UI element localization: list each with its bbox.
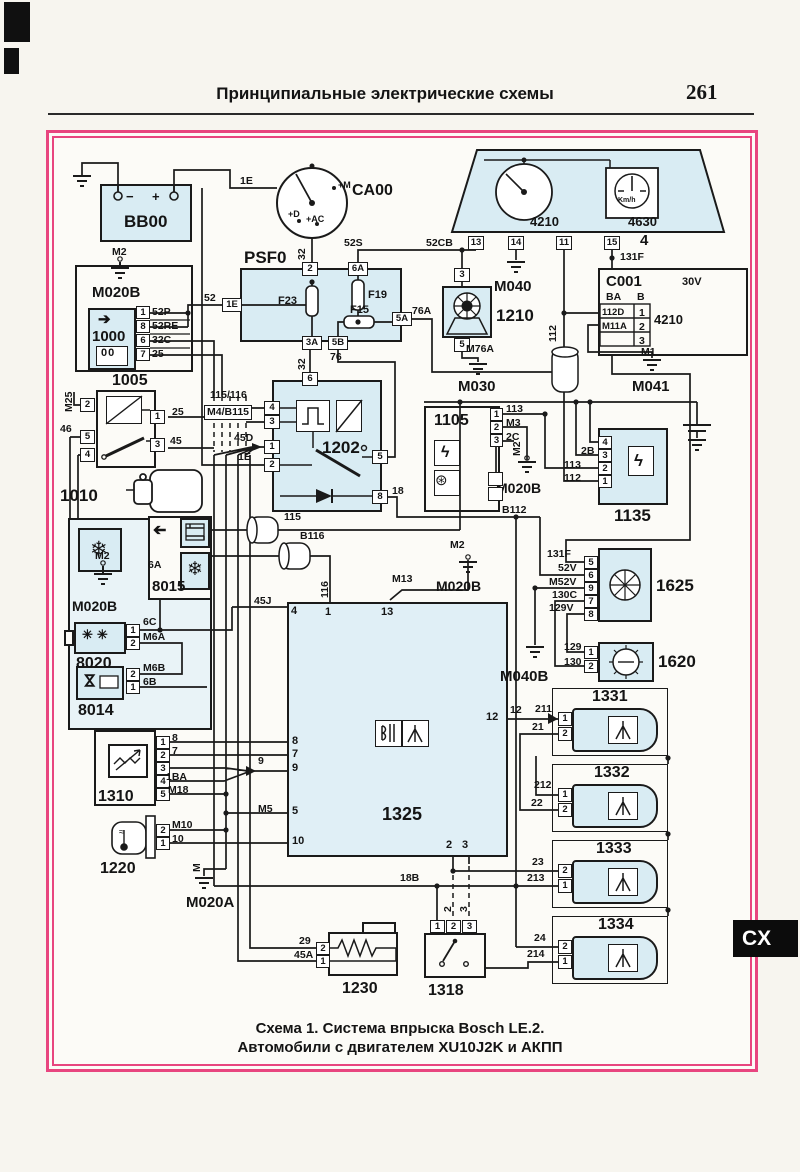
u1105-conn-a [488,472,503,486]
wire-m18: M18 [168,785,188,796]
wire-116: 116 [320,581,331,598]
ground-m030: M030 [458,378,496,395]
wire-m25: M25 [64,392,75,412]
u8014-pin-2: 2 [126,668,140,681]
wire-45j: 45J [254,596,272,607]
wire-52cb: 52CB [426,238,453,249]
c001-r2a: M11A [602,322,627,332]
wire-115-116: 115/116 [210,390,247,401]
wire-9: 9 [258,756,264,767]
wire-1ba: 1BA [166,772,187,783]
pump-1210-label: 1210 [496,306,534,326]
u1625-pin-5: 5 [584,556,598,569]
fuse-f23-label: F23 [278,296,297,307]
resistor-1230-step [362,922,396,934]
ecu-pin-1: 1 [325,607,331,618]
switch-1318-label: 1318 [428,982,464,1000]
u1625-pin-7: 7 [584,595,598,608]
c001-r1b: 1 [639,308,645,319]
injector-1331-icon-box [608,716,638,744]
psf0-label: PSF0 [244,248,287,268]
c001-label: C001 [606,273,642,290]
ac-8020-stub [64,630,74,646]
u1625-pin-9: 9 [584,582,598,595]
relay-1202-diag-icon-box [336,400,362,432]
arrow-left-icon: ➔ [153,523,166,539]
psf0-pin-5b: 5B [328,336,348,350]
wire-m4-b115: M4/B115 [204,405,252,420]
u1000-pin-6: 6 [136,334,150,347]
c001-colA: BA [606,292,621,303]
wire-45: 45 [170,436,182,447]
sensor-1220-label: 1220 [100,860,136,878]
ground-m040b: M040B [500,668,548,685]
ecu-pin-9: 9 [292,763,298,774]
battery-plus: + [152,190,160,203]
injector-1333-icon-box [608,868,638,896]
speedo-unit: Km/h [618,197,636,204]
module-1135-label: 1135 [614,506,651,526]
ac-8020-label: 8020 [76,655,112,673]
u8014-pin-1: 1 [126,681,140,694]
wire-m13: M13 [392,574,412,585]
ground-m040: M040 [494,278,532,295]
u1625-pin-6: 6 [584,569,598,582]
snowflake-icon-8015: ❄ [187,560,203,579]
wire-129: 129 [564,642,582,653]
u1202-pin-3: 3 [264,415,280,429]
u1105-pin-2: 2 [490,421,503,434]
u1202-pin-1: 1 [264,440,280,454]
arrow-right-icon: ➔ [98,312,111,327]
lightning-icon-1135: ϟ [634,452,643,469]
wire-52: 52 [204,293,216,304]
ecu-pin-5: 5 [292,806,298,817]
wire-113-a: 113 [506,404,523,415]
ecu-coil-icon-box [375,720,402,747]
wire-46: 46 [60,424,72,435]
wire-23: 23 [532,857,544,868]
u1135-pin-3: 3 [598,449,612,462]
psf0-pin-6a: 6A [348,262,368,276]
u1005-pin-4: 4 [80,448,95,462]
sensor-1625-box [598,548,652,622]
ecu-injector-icon-box [402,720,429,747]
u1202-pin-6: 6 [302,372,318,386]
i1332-pin-1: 1 [558,788,572,802]
ac-8015-relay-icon-box [180,518,210,548]
thermo-waves-icon: ≈ [119,828,125,838]
wire-112: 112 [548,325,559,342]
footprints-icon: 00 [101,348,115,359]
wire-10: 10 [172,834,184,845]
caption-line-2: Автомобили с двигателем XU10J2K и АКПП [140,1039,660,1058]
wire-m1: M1 [641,347,656,358]
u1220-pin-2: 2 [156,824,170,837]
injector-1334-icon-box [608,944,638,972]
u1135-pin-1: 1 [598,475,612,488]
pump-1210-box [442,286,492,338]
u1310-pin-2: 2 [156,749,170,762]
i1331-pin-1: 1 [558,712,572,726]
ecu-pin-3: 3 [462,840,468,851]
u1000-pin-1: 1 [136,306,150,319]
ground-m041: M041 [632,378,670,395]
ground-m020b-1: M020B [92,284,140,301]
ca00-term-d: +D [288,210,300,219]
wire-45a: 45A [294,950,313,961]
resistor-1230-box [328,932,398,976]
u1105-pin-1: 1 [490,408,503,421]
wire-b112: B112 [502,505,527,516]
wire-24: 24 [534,933,546,944]
u1318-pin-2: 2 [446,920,461,933]
wire-m6b: M6B [143,663,165,674]
u1000-pin-7: 7 [136,348,150,361]
c001-r3b: 3 [639,336,645,347]
i1333-pin-2: 2 [558,864,572,878]
relay-1005-label: 1005 [112,372,148,390]
wire-b116: B116 [300,531,325,542]
wire-52re: 52RE [152,321,178,332]
fuse-f15-label: F15 [350,305,369,316]
inj-1331-label: 1331 [592,688,628,706]
ecu-pin-8: 8 [292,736,298,747]
wire-52p: 52P [152,307,171,318]
wire-12: 12 [510,705,522,716]
u1105-conn-b [488,487,503,501]
pot-1310-icon-box [108,744,148,778]
wire-m52v: M52V [549,577,576,588]
cluster-number: 4 [640,232,648,249]
cluster-pin-13: 13 [468,236,484,250]
u1005-pin-2: 2 [80,398,95,412]
pot-1310-label: 1310 [98,788,134,806]
wire-2b: 2B [581,446,594,457]
ac-8015-label: 8015 [152,578,185,595]
c001-r2b: 2 [639,322,645,333]
psf0-pin-1e: 1E [222,298,242,312]
wire-212: 212 [534,780,552,791]
u8020-pin-2: 2 [126,637,140,650]
inj-1332-label: 1332 [594,764,630,782]
wire-32c: 32C [152,335,171,346]
page-title: Принципиальные электрические схемы [150,84,620,104]
ca00-term-ac: +AC [306,215,324,224]
wire-6c: 6C [143,617,156,628]
wire-52v: 52V [558,563,577,574]
wire-m2-top: M2 [112,247,127,258]
page-corner-mark [4,2,30,42]
wire-8: 8 [172,733,178,744]
u1230-pin-1: 1 [316,955,330,968]
fan-circle-icon-1105: ⊛ [435,473,448,488]
wire-32-a: 32 [297,248,308,260]
cluster-pin-11: 11 [556,236,572,250]
i1331-pin-2: 2 [558,727,572,741]
wire-m10: M10 [172,820,192,831]
ac-8014-label: 8014 [78,702,114,720]
ground-m020b-4: M020B [72,598,117,614]
wire-6a: 6A [148,560,161,571]
valve-icon-8014: ⋈ [82,673,97,688]
u1620-pin-2: 2 [584,660,598,673]
u1005-pin-3: 3 [150,438,165,452]
wire-129v: 129V [549,603,574,614]
battery-label: BB00 [124,212,167,232]
wire-29: 29 [299,936,311,947]
c001-volt: 30V [682,276,702,288]
inj-1334-label: 1334 [598,916,634,934]
wire-214: 214 [527,949,545,960]
wire-25-b: 25 [172,407,184,418]
fusebox-psf0-box [240,268,402,342]
wire-32-b: 32 [297,358,308,370]
u1135-pin-2: 2 [598,462,612,475]
i1333-pin-1: 1 [558,879,572,893]
wire-22: 22 [531,798,543,809]
u8020-pin-1: 1 [126,624,140,637]
u1000-pin-8: 8 [136,320,150,333]
u1202-pin-4: 4 [264,401,280,415]
u1625-pin-8: 8 [584,608,598,621]
c001-colB: B [637,292,645,303]
wire-18: 18 [392,486,404,497]
cluster-tacho-label: 4210 [530,214,559,229]
wire-6b: 6B [143,677,156,688]
psf0-pin-3a: 3A [302,336,322,350]
u1202-pin-8: 8 [372,490,388,504]
diagram-caption: Схема 1. Система впрыска Bosch LE.2. Авт… [140,1020,660,1058]
wire-130c: 130C [552,590,577,601]
sensor-1105-label: 1105 [434,412,469,430]
manual-page: Принципиальные электрические схемы 261 [0,0,800,1172]
snowflake-icon: ❄ [90,539,108,560]
u1202-pin-2: 2 [264,458,280,472]
cluster-pin-15: 15 [604,236,620,250]
comp-1010-label: 1010 [60,486,98,506]
psf0-pin-5a: 5A [392,312,412,326]
wire-m76a: M76A [466,344,494,355]
wire-25-row: 25 [152,349,164,360]
i1334-pin-2: 2 [558,940,572,954]
ecu-pin-12: 12 [486,712,498,723]
switch-1318-box [424,933,486,978]
wire-m: M [192,863,203,872]
relay-1005-coil-icon [106,396,142,424]
sensor-1620-box [598,642,654,682]
c001-r1a: 112D [602,308,624,318]
i1334-pin-1: 1 [558,955,572,969]
page-number: 261 [686,80,718,105]
cluster-pin-14: 14 [508,236,524,250]
wire-76a: 76A [412,306,431,317]
header-rule [48,113,754,115]
ecu-pin-2: 2 [446,840,452,851]
wire-211: 211 [535,704,552,715]
wire-115: 115 [284,512,301,523]
wire-3v: 3 [459,906,470,912]
wire-m2-ecu: M2 [450,540,465,551]
wire-113-b: 113 [564,460,581,471]
u1005-pin-5: 5 [80,430,95,444]
fuse-f19-label: F19 [368,290,387,301]
wire-m2-1105: M2 [512,441,523,456]
u1318-pin-1: 1 [430,920,445,933]
sensor-1620-label: 1620 [658,652,696,672]
u1620-pin-1: 1 [584,646,598,659]
ignition-label: CA00 [352,182,393,200]
u1230-pin-2: 2 [316,942,330,955]
relay-1202-pulse-icon-box [296,400,330,432]
c001-ref: 4210 [654,312,683,327]
ecu-pin-4: 4 [291,606,297,617]
wire-1e-b: 1E [238,452,251,463]
stars-icon-8020: ✳✳ [82,628,112,641]
wire-21: 21 [532,722,544,733]
cluster-speedo-label: 4630 [628,214,657,229]
u1220-pin-1: 1 [156,837,170,850]
injector-1332-icon-box [608,792,638,820]
wire-m6a: M6A [143,632,165,643]
u1318-pin-3: 3 [462,920,477,933]
psf0-pin-2: 2 [302,262,318,276]
ground-m020a: M020A [186,894,234,911]
u1135-pin-4: 4 [598,436,612,449]
wire-7: 7 [172,746,178,757]
wire-m5: M5 [258,804,273,815]
wire-52s: 52S [344,238,363,249]
inj-1333-label: 1333 [596,840,632,858]
wire-45d: 45D [234,433,253,444]
wire-131f-b: 131F [547,549,571,560]
alternator-label: 1000 [92,328,125,345]
caption-line-1: Схема 1. Система впрыска Bosch LE.2. [140,1020,660,1039]
ecu-pin-13: 13 [381,607,393,618]
ecu-pin-7: 7 [292,749,298,760]
lightning-icon-1105: ϟ [441,445,449,461]
u1005-pin-1: 1 [150,410,165,424]
battery-minus: − [126,190,134,203]
ground-m020b-3: M020B [436,578,481,594]
u1202-pin-5: 5 [372,450,388,464]
wire-112-b: 112 [564,473,581,484]
ecu-pin-10: 10 [292,836,304,847]
u1210-pin-3: 3 [454,268,470,282]
relay-1202-label: 1202 [322,438,360,458]
wire-130: 130 [564,657,582,668]
wire-131f-a: 131F [620,252,644,263]
u1310-pin-1: 1 [156,736,170,749]
resistor-1230-label: 1230 [342,980,378,998]
wire-76: 76 [330,352,342,363]
wire-1e-a: 1E [240,176,253,187]
wire-2v: 2 [443,906,454,912]
wire-213: 213 [527,873,545,884]
page-corner-mark-2 [4,48,19,74]
u1105-pin-3: 3 [490,434,503,447]
i1332-pin-2: 2 [558,803,572,817]
ca00-term-m: +M [338,181,351,190]
wire-m3: M3 [506,418,521,429]
section-tab: CX [733,920,798,957]
sensor-1625-label: 1625 [656,576,694,596]
wire-18b: 18B [400,873,419,884]
ecu-label: 1325 [382,804,422,825]
